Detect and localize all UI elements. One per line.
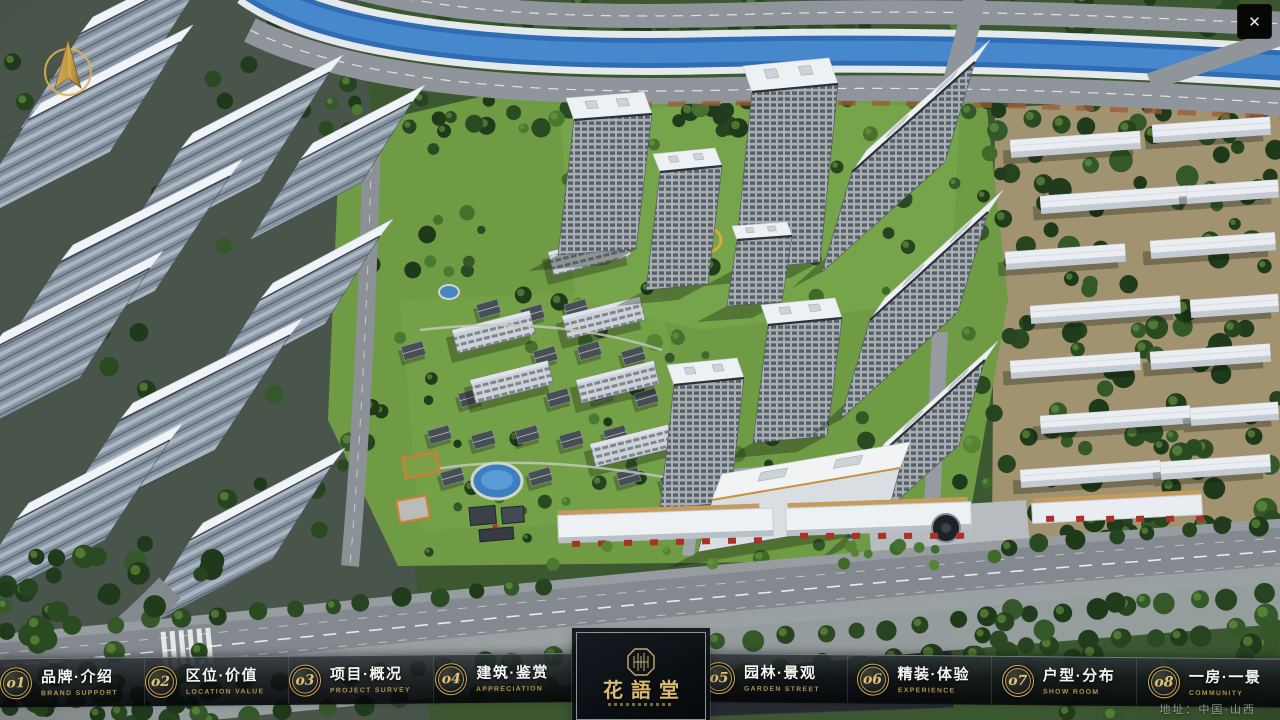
nav-item-sublabel: COMMUNITY: [1189, 689, 1243, 697]
logo-seal-icon: [626, 647, 656, 677]
nav-item-room-views[interactable]: o8 一房·一景 COMMUNITY: [1136, 658, 1280, 706]
nav-item-label: 区位·价值: [186, 664, 259, 686]
nav-item-label: 一房·一景: [1189, 666, 1262, 688]
nav-item-number-badge: o4: [435, 663, 467, 695]
nav-item-landscape[interactable]: o5 园林·景观 GARDEN STREET: [703, 654, 847, 702]
nav-bar-right: o5 园林·景观 GARDEN STREET o6 精装·体验 EXPERIEN…: [703, 653, 1280, 708]
nav-item-label: 品牌·介绍: [41, 665, 114, 687]
nav-item-number-badge: o8: [1148, 666, 1180, 698]
nav-item-label: 精装·体验: [898, 663, 971, 685]
nav-item-project-overview[interactable]: o3 项目·概况 PROJECT SURVEY: [288, 655, 433, 703]
nav-item-number-badge: o3: [289, 664, 321, 696]
nav-item-sublabel: APPRECIATION: [476, 685, 543, 693]
nav-item-sublabel: SHOW ROOM: [1043, 688, 1099, 696]
nav-item-label: 项目·概况: [330, 663, 403, 685]
nav-item-sublabel: BRAND SUPPORT: [41, 689, 118, 697]
nav-item-sublabel: PROJECT SURVEY: [330, 686, 411, 694]
close-button[interactable]: ✕: [1238, 5, 1271, 38]
vignette: [0, 0, 1280, 720]
close-icon: ✕: [1248, 13, 1261, 31]
nav-item-sublabel: GARDEN STREET: [744, 685, 820, 693]
nav-item-sublabel: EXPERIENCE: [898, 687, 955, 695]
nav-item-interior-experience[interactable]: o6 精装·体验 EXPERIENCE: [847, 655, 992, 703]
nav-item-floorplans[interactable]: o7 户型·分布 SHOW ROOM: [991, 657, 1136, 705]
nav-item-number-badge: o1: [0, 667, 32, 699]
nav-item-architecture[interactable]: o4 建筑·鉴赏 APPRECIATION: [433, 654, 578, 702]
nav-item-label: 户型·分布: [1043, 664, 1116, 686]
project-address: 地址：中国·山西: [1159, 701, 1256, 717]
nav-item-number-badge: o6: [857, 663, 889, 695]
presentation-app: ✕ o1 品牌·介绍 BRAND SUPPORT o2 区位·价值 LOCATI…: [0, 0, 1280, 720]
nav-item-label: 园林·景观: [744, 661, 817, 683]
nav-item-number-badge: o2: [145, 665, 177, 697]
nav-item-number-badge: o7: [1002, 664, 1034, 696]
nav-item-sublabel: LOCATION VALUE: [186, 688, 264, 696]
nav-item-label: 建筑·鉴赏: [476, 661, 549, 683]
logo-subtitle-line: [608, 703, 674, 706]
nav-item-brand-intro[interactable]: o1 品牌·介绍 BRAND SUPPORT: [0, 658, 144, 706]
nav-item-location-value[interactable]: o2 区位·价值 LOCATION VALUE: [144, 657, 289, 705]
nav-bar-left: o1 品牌·介绍 BRAND SUPPORT o2 区位·价值 LOCATION…: [0, 653, 577, 708]
project-logo[interactable]: 花語堂: [576, 632, 706, 720]
nav-item-number-badge: o5: [703, 662, 735, 694]
logo-title: 花語堂: [595, 680, 687, 700]
site-map-render: [0, 0, 1280, 720]
compass-icon: [36, 34, 100, 104]
